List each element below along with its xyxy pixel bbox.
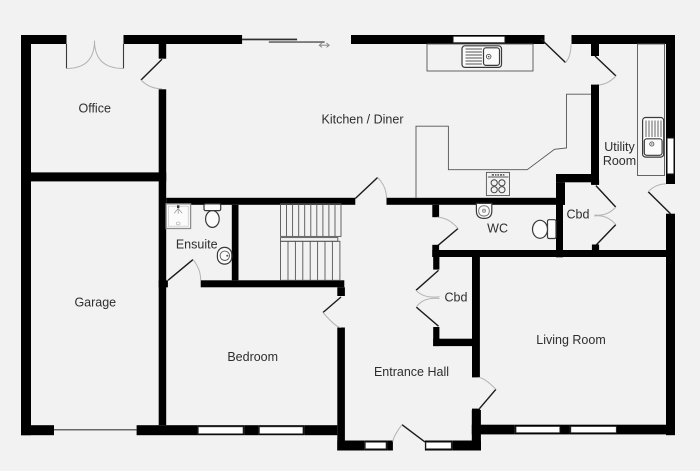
svg-text:Garage: Garage	[74, 295, 116, 309]
svg-text:Living Room: Living Room	[536, 333, 605, 347]
svg-text:Ensuite: Ensuite	[176, 238, 218, 252]
svg-text:Office: Office	[78, 102, 110, 116]
svg-text:Cbd: Cbd	[445, 291, 468, 305]
svg-text:Bedroom: Bedroom	[227, 350, 278, 364]
svg-text:Room: Room	[603, 154, 636, 168]
svg-text:Entrance Hall: Entrance Hall	[374, 365, 449, 379]
svg-text:WC: WC	[487, 222, 508, 236]
svg-text:Cbd: Cbd	[567, 207, 590, 221]
svg-text:Utility: Utility	[604, 140, 635, 154]
svg-text:Kitchen / Diner: Kitchen / Diner	[322, 112, 404, 126]
